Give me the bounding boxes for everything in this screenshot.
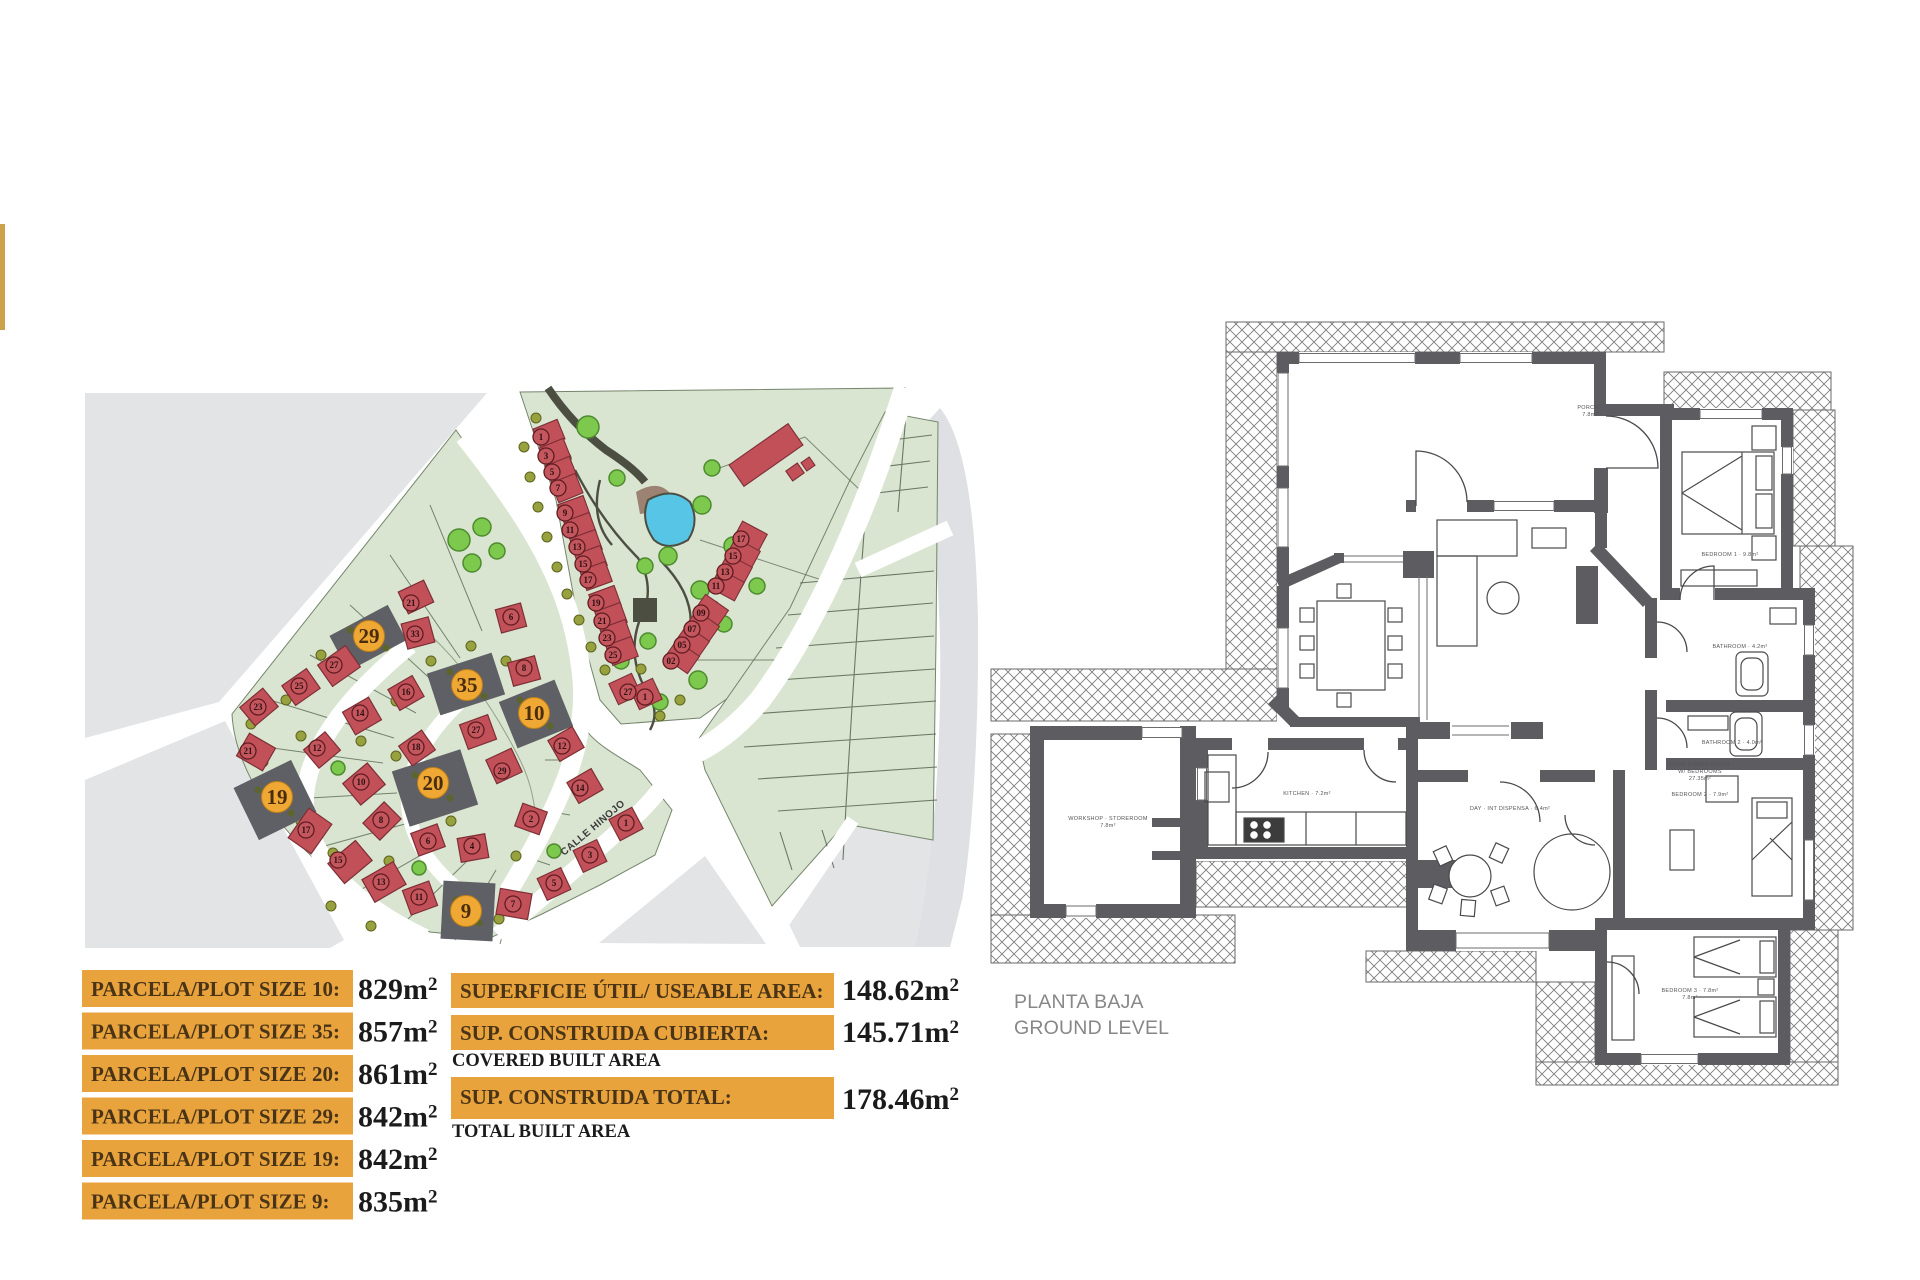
svg-text:PARCELA/PLOT SIZE 19:: PARCELA/PLOT SIZE 19: — [91, 1147, 340, 1171]
svg-text:SUPERFICIE ÚTIL/ USEABLE AREA:: SUPERFICIE ÚTIL/ USEABLE AREA: — [460, 979, 824, 1003]
svg-text:148.62m2: 148.62m2 — [842, 974, 959, 1007]
svg-text:3: 3 — [544, 451, 549, 461]
svg-text:12: 12 — [558, 741, 568, 751]
svg-text:BEDROOM 1 · 9.8m²: BEDROOM 1 · 9.8m² — [1701, 552, 1758, 558]
svg-text:05: 05 — [678, 640, 688, 650]
svg-text:LIVING DINING ROOM ·: LIVING DINING ROOM · — [1667, 762, 1734, 768]
svg-text:7.8m²: 7.8m² — [1100, 823, 1116, 829]
svg-text:835m2: 835m2 — [358, 1186, 438, 1219]
svg-text:19: 19 — [267, 785, 288, 809]
svg-text:17: 17 — [737, 534, 747, 544]
svg-text:10: 10 — [524, 701, 545, 725]
svg-text:PORCH ·: PORCH · — [1577, 405, 1602, 411]
svg-text:16: 16 — [402, 687, 412, 697]
svg-text:25: 25 — [295, 681, 305, 691]
svg-text:33: 33 — [411, 629, 421, 639]
svg-text:35: 35 — [457, 673, 478, 697]
svg-text:25: 25 — [609, 650, 619, 660]
svg-text:10: 10 — [357, 777, 367, 787]
svg-text:13: 13 — [573, 542, 583, 552]
svg-text:842m2: 842m2 — [358, 1143, 438, 1176]
svg-text:3: 3 — [588, 850, 593, 860]
svg-text:6: 6 — [509, 612, 514, 622]
svg-text:14: 14 — [576, 783, 586, 793]
svg-text:20: 20 — [423, 771, 444, 795]
svg-text:15: 15 — [729, 551, 739, 561]
svg-text:23: 23 — [603, 633, 613, 643]
svg-text:11: 11 — [415, 892, 424, 902]
svg-text:13: 13 — [377, 877, 387, 887]
svg-text:1: 1 — [539, 432, 544, 442]
svg-text:21: 21 — [407, 598, 417, 608]
svg-text:9: 9 — [461, 899, 472, 923]
svg-text:7: 7 — [511, 899, 516, 909]
svg-text:BEDROOM 3 · 7.8m²: BEDROOM 3 · 7.8m² — [1661, 988, 1718, 994]
svg-text:7.8m²: 7.8m² — [1582, 412, 1598, 418]
svg-text:KITCHEN · 7.2m²: KITCHEN · 7.2m² — [1283, 791, 1331, 797]
svg-text:2: 2 — [529, 814, 534, 824]
svg-text:21: 21 — [598, 616, 608, 626]
svg-text:7.8m²: 7.8m² — [1682, 995, 1698, 1001]
svg-text:1: 1 — [643, 692, 648, 702]
svg-text:857m2: 857m2 — [358, 1016, 438, 1049]
svg-text:13: 13 — [721, 567, 731, 577]
svg-text:PARCELA/PLOT SIZE 29:: PARCELA/PLOT SIZE 29: — [91, 1105, 340, 1129]
svg-text:15: 15 — [334, 855, 344, 865]
svg-text:18: 18 — [412, 742, 422, 752]
svg-text:SUP. CONSTRUIDA CUBIERTA:: SUP. CONSTRUIDA CUBIERTA: — [460, 1021, 769, 1045]
svg-text:145.71m2: 145.71m2 — [842, 1016, 959, 1049]
svg-text:29: 29 — [498, 766, 508, 776]
svg-text:17: 17 — [302, 825, 312, 835]
svg-text:6: 6 — [426, 836, 431, 846]
svg-text:23: 23 — [254, 702, 264, 712]
svg-text:842m2: 842m2 — [358, 1101, 438, 1134]
svg-text:07: 07 — [688, 624, 698, 634]
svg-text:8: 8 — [379, 815, 384, 825]
svg-text:DAY · INT DISPENSA · 6.4m²: DAY · INT DISPENSA · 6.4m² — [1470, 806, 1550, 812]
svg-text:BEDROOM 2 · 7.9m²: BEDROOM 2 · 7.9m² — [1671, 792, 1728, 798]
svg-text:PARCELA/PLOT SIZE 10:: PARCELA/PLOT SIZE 10: — [91, 977, 340, 1001]
svg-text:15: 15 — [579, 559, 589, 569]
svg-text:27: 27 — [624, 687, 634, 697]
svg-text:829m2: 829m2 — [358, 973, 438, 1006]
svg-text:09: 09 — [697, 608, 707, 618]
svg-text:PARCELA/PLOT SIZE 35:: PARCELA/PLOT SIZE 35: — [91, 1020, 340, 1044]
svg-text:8: 8 — [522, 663, 527, 673]
svg-text:5: 5 — [552, 878, 557, 888]
svg-text:PLANTA BAJA: PLANTA BAJA — [1014, 991, 1144, 1013]
svg-text:14: 14 — [356, 708, 366, 718]
svg-text:PARCELA/PLOT SIZE 20:: PARCELA/PLOT SIZE 20: — [91, 1062, 340, 1086]
svg-text:WORKSHOP · STOREROOM: WORKSHOP · STOREROOM — [1068, 816, 1148, 822]
svg-text:BATHROOM 2 · 4.0m²: BATHROOM 2 · 4.0m² — [1702, 740, 1762, 746]
svg-text:178.46m2: 178.46m2 — [842, 1083, 959, 1116]
svg-text:COVERED BUILT AREA: COVERED BUILT AREA — [452, 1051, 661, 1071]
svg-text:GROUND LEVEL: GROUND LEVEL — [1014, 1017, 1169, 1039]
svg-text:11: 11 — [566, 525, 575, 535]
svg-text:TOTAL BUILT AREA: TOTAL BUILT AREA — [452, 1122, 631, 1142]
svg-text:SUP. CONSTRUIDA TOTAL:: SUP. CONSTRUIDA TOTAL: — [460, 1085, 732, 1109]
svg-text:17: 17 — [584, 575, 594, 585]
svg-text:1: 1 — [624, 818, 629, 828]
svg-text:27: 27 — [330, 660, 340, 670]
svg-text:12: 12 — [313, 743, 323, 753]
svg-text:02: 02 — [667, 656, 677, 666]
svg-text:BATHROOM · 4.2m²: BATHROOM · 4.2m² — [1712, 644, 1767, 650]
svg-text:19: 19 — [592, 598, 602, 608]
svg-text:7: 7 — [556, 483, 561, 493]
svg-text:27.35m²: 27.35m² — [1689, 776, 1711, 782]
svg-text:29: 29 — [359, 624, 380, 648]
svg-text:9: 9 — [563, 508, 568, 518]
svg-text:861m2: 861m2 — [358, 1058, 438, 1091]
svg-text:27: 27 — [472, 725, 482, 735]
svg-text:PARCELA/PLOT SIZE 9:: PARCELA/PLOT SIZE 9: — [91, 1190, 329, 1214]
svg-text:W/ BEDROOMS: W/ BEDROOMS — [1678, 769, 1722, 775]
svg-text:11: 11 — [712, 581, 721, 591]
svg-text:5: 5 — [550, 467, 555, 477]
svg-text:4: 4 — [470, 841, 475, 851]
svg-text:21: 21 — [244, 746, 254, 756]
